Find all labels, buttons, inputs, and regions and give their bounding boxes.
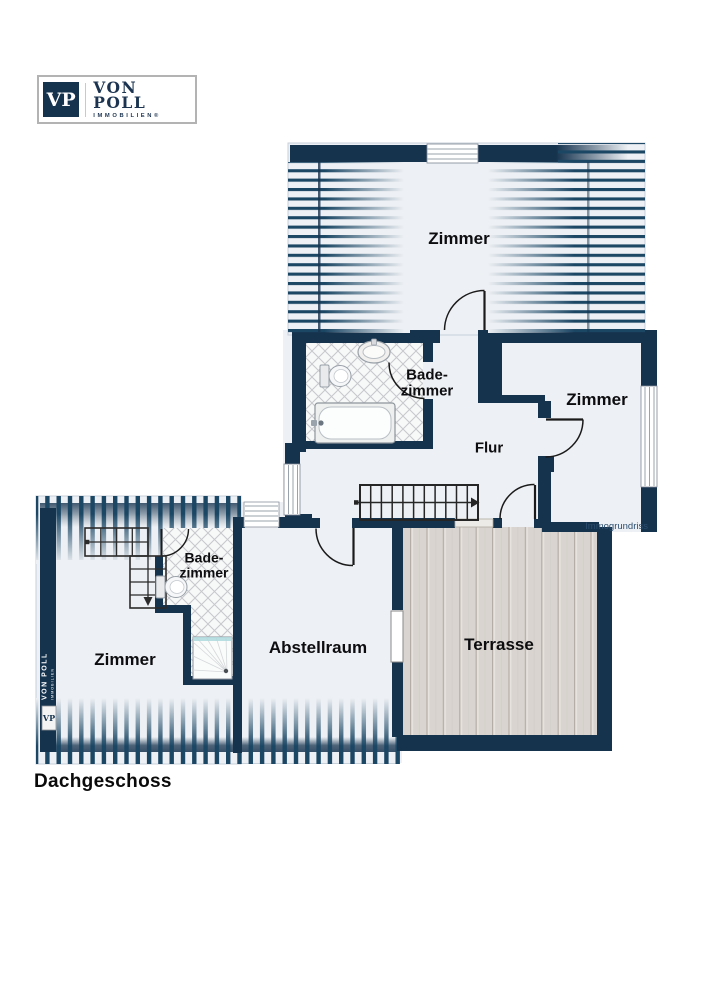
window-flur-left bbox=[284, 464, 300, 515]
floorplan-page: VP VON POLL IMMOBILIEN® bbox=[0, 0, 706, 1000]
room-label-terrasse: Terrasse bbox=[464, 635, 534, 655]
terrace-door-closed bbox=[391, 611, 403, 662]
floorplan-drawing: VON POLL IMMOBILIEN VP bbox=[0, 0, 706, 1000]
window-abstellraum bbox=[244, 502, 279, 527]
window-top-room bbox=[427, 144, 478, 163]
watermark-vp-icon: VP bbox=[42, 713, 55, 723]
shower bbox=[193, 637, 232, 679]
terrace-decking bbox=[400, 527, 597, 737]
svg-text:VON POLL: VON POLL bbox=[42, 652, 49, 700]
room-label-zimmer-left: Zimmer bbox=[94, 650, 155, 670]
floor-title: Dachgeschoss bbox=[34, 771, 172, 793]
svg-text:IMMOBILIEN: IMMOBILIEN bbox=[51, 668, 55, 700]
room-label-badezimmer-top: Bade- zimmer bbox=[401, 368, 454, 399]
room-label-badezimmer-left: Bade- zimmer bbox=[179, 551, 228, 580]
room-label-flur: Flur bbox=[475, 440, 503, 456]
room-label-zimmer-right: Zimmer bbox=[566, 390, 627, 410]
bathtub bbox=[311, 403, 395, 443]
room-label-abstellraum: Abstellraum bbox=[269, 638, 367, 658]
toilet-top-bathroom bbox=[320, 365, 351, 387]
immogrundriss-credit: Immogrundriss bbox=[585, 521, 648, 532]
room-label-zimmer-top: Zimmer bbox=[428, 229, 489, 249]
window-right-zimmer bbox=[641, 386, 657, 487]
